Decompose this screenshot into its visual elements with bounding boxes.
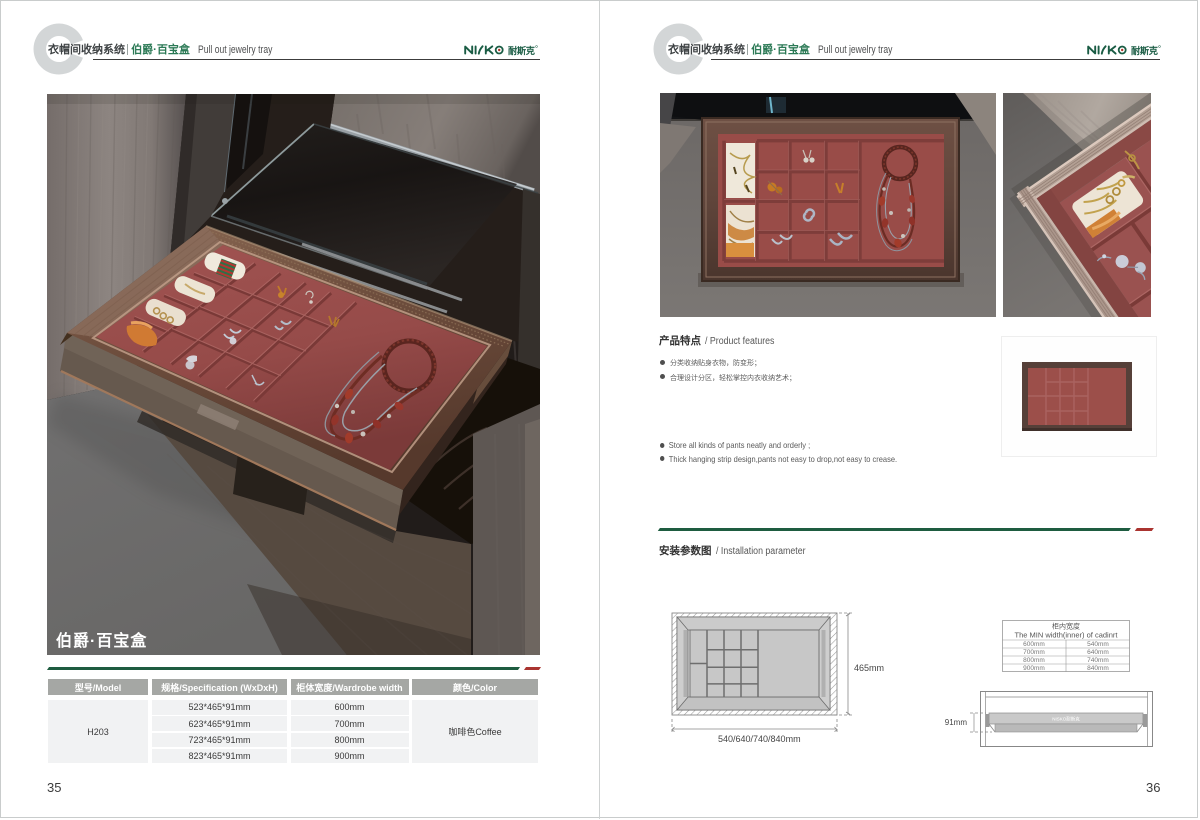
svg-text:640mm: 640mm	[1087, 649, 1109, 656]
svg-text:840mm: 840mm	[1087, 665, 1109, 672]
svg-text:540mm: 540mm	[1087, 641, 1109, 648]
svg-text:91mm: 91mm	[945, 718, 968, 727]
svg-text:540/640/740/840mm: 540/640/740/840mm	[718, 734, 801, 744]
svg-text:The MIN width(inner) of cadinr: The MIN width(inner) of cadinrt	[1015, 631, 1119, 640]
svg-text:740mm: 740mm	[1087, 657, 1109, 664]
svg-text:700mm: 700mm	[1023, 649, 1045, 656]
svg-text:600mm: 600mm	[1023, 641, 1045, 648]
svg-text:耐斯克: 耐斯克	[1131, 45, 1158, 56]
svg-text:800mm: 800mm	[1023, 657, 1045, 664]
svg-text:NISKO耐斯克: NISKO耐斯克	[1052, 716, 1080, 723]
svg-text:耐斯克: 耐斯克	[508, 45, 535, 56]
svg-text:柜内宽度: 柜内宽度	[1052, 622, 1080, 631]
svg-text:465mm: 465mm	[854, 663, 884, 673]
svg-text:900mm: 900mm	[1023, 665, 1045, 672]
